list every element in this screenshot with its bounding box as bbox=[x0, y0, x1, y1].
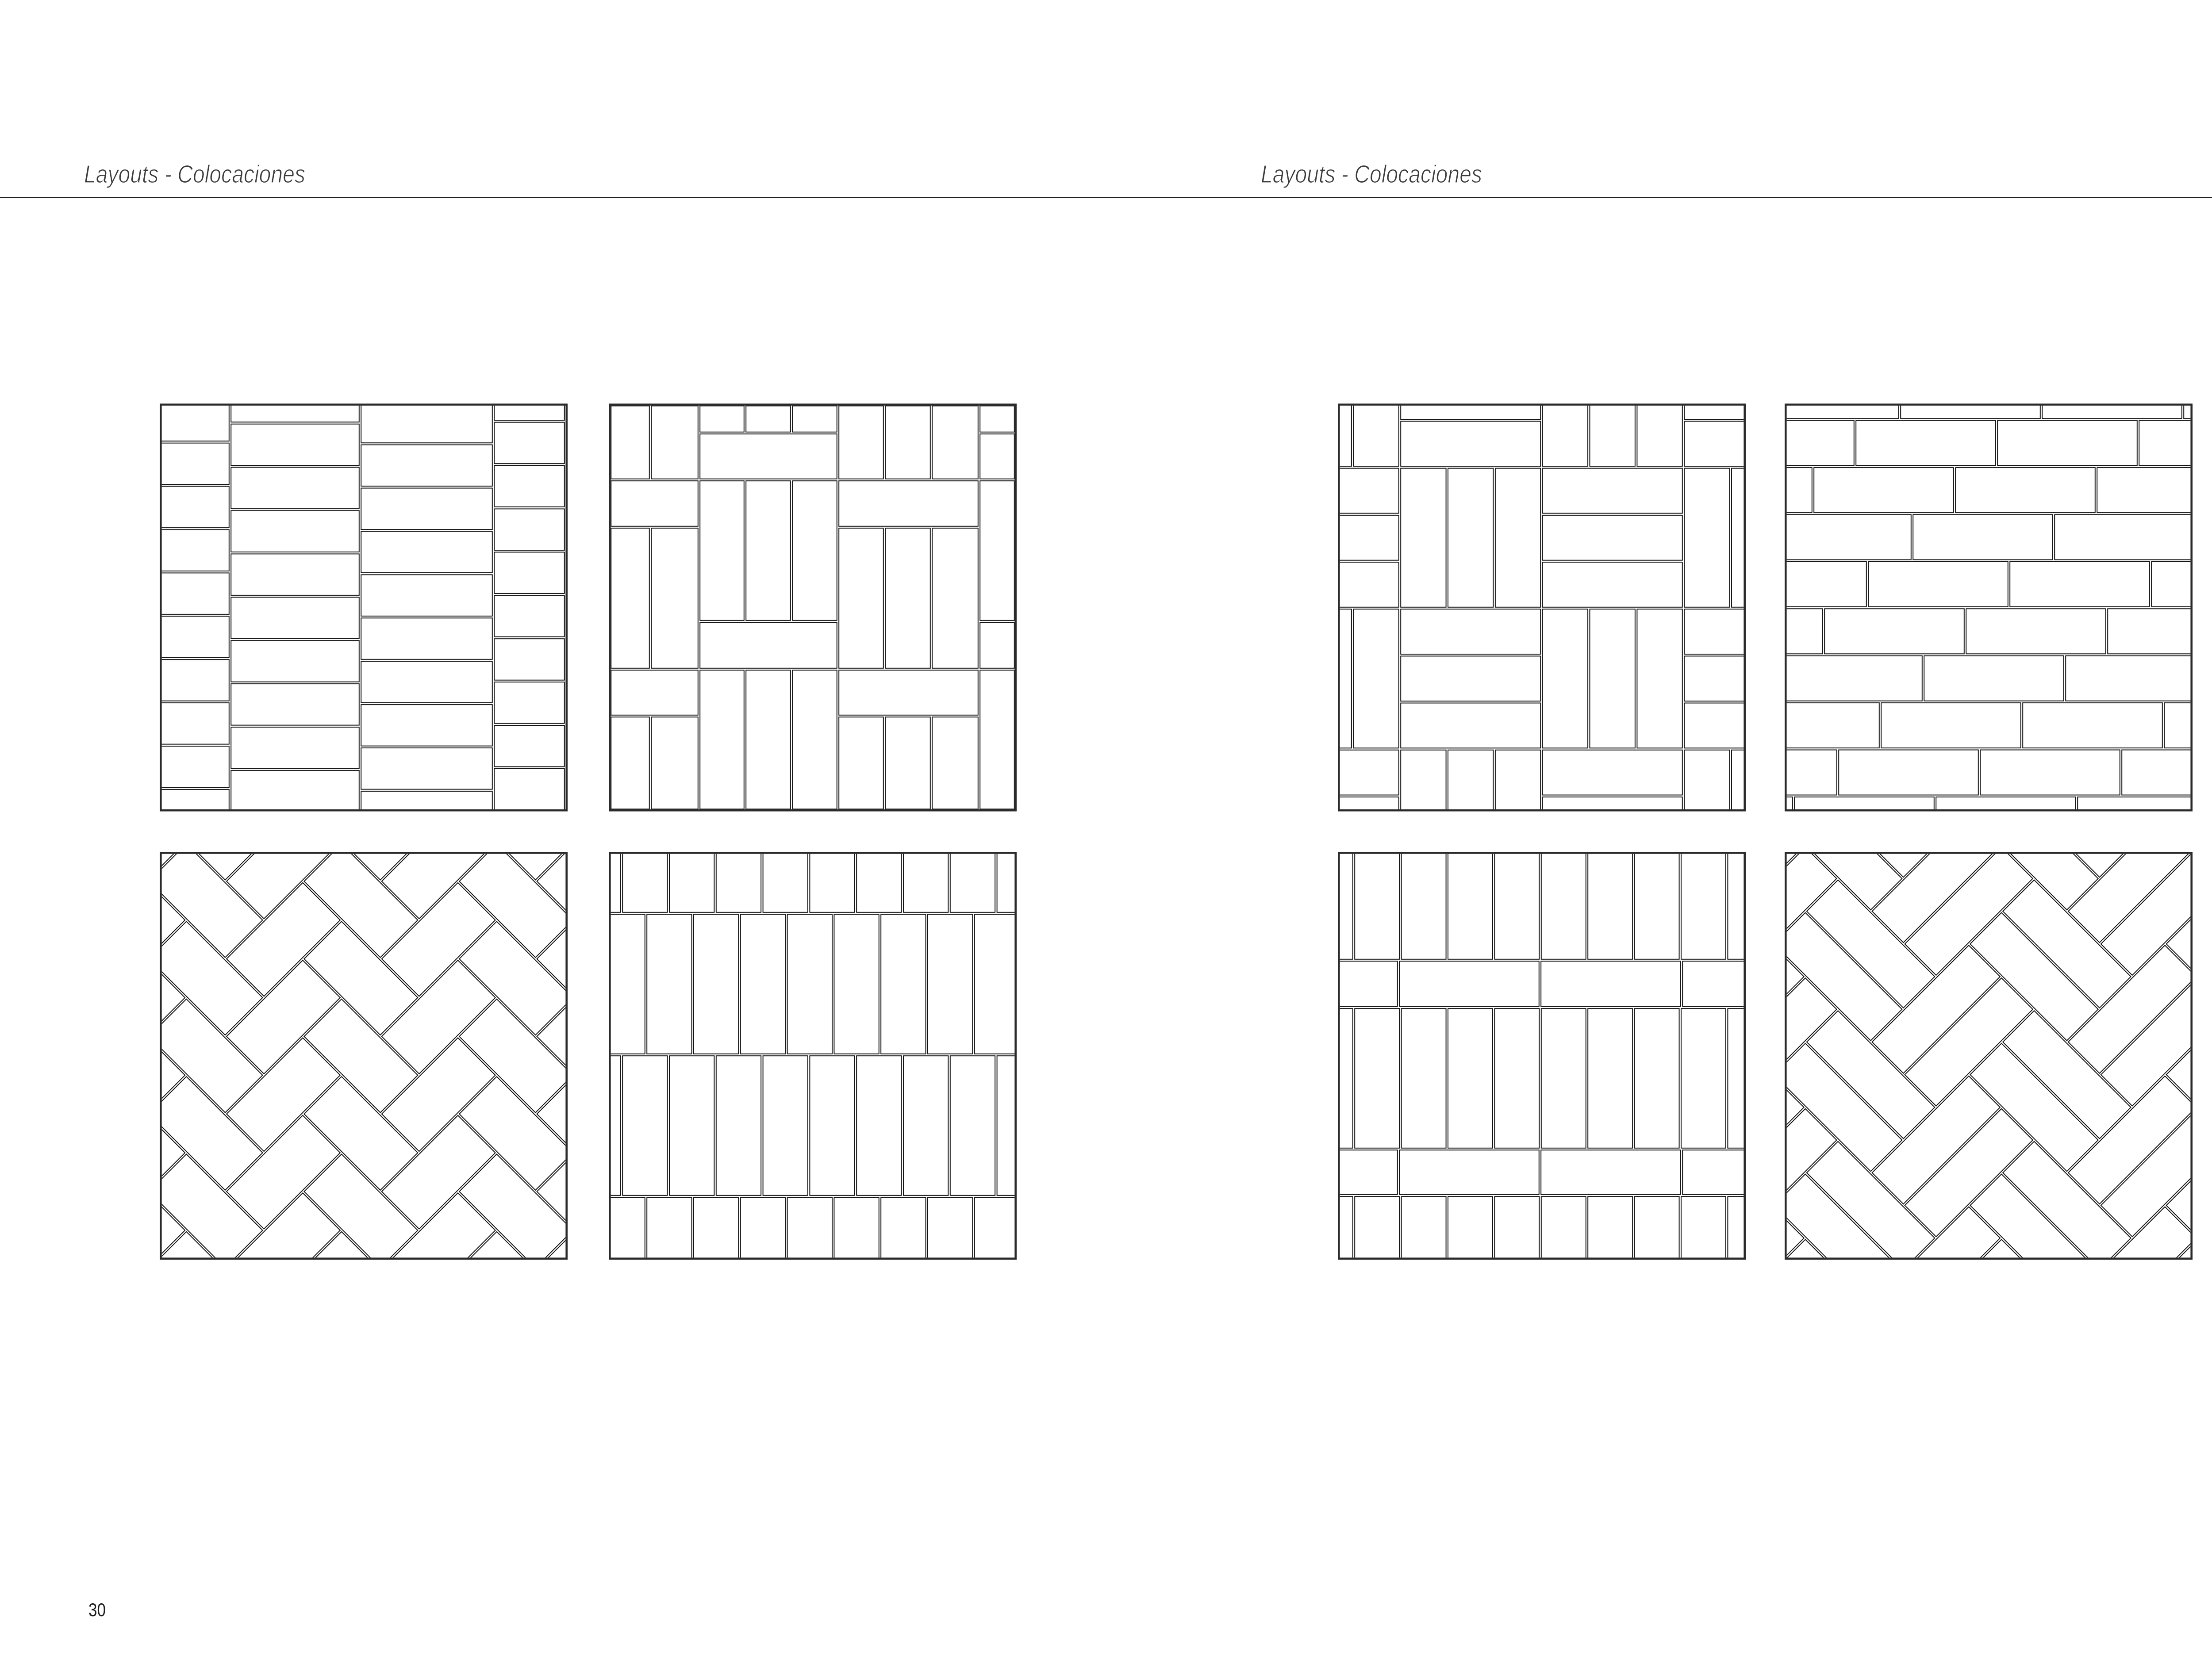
svg-text:30: 30 bbox=[88, 1599, 106, 1620]
svg-text:Layouts - Colocaciones: Layouts - Colocaciones bbox=[1261, 160, 1482, 188]
svg-text:Layouts - Colocaciones: Layouts - Colocaciones bbox=[84, 160, 305, 188]
